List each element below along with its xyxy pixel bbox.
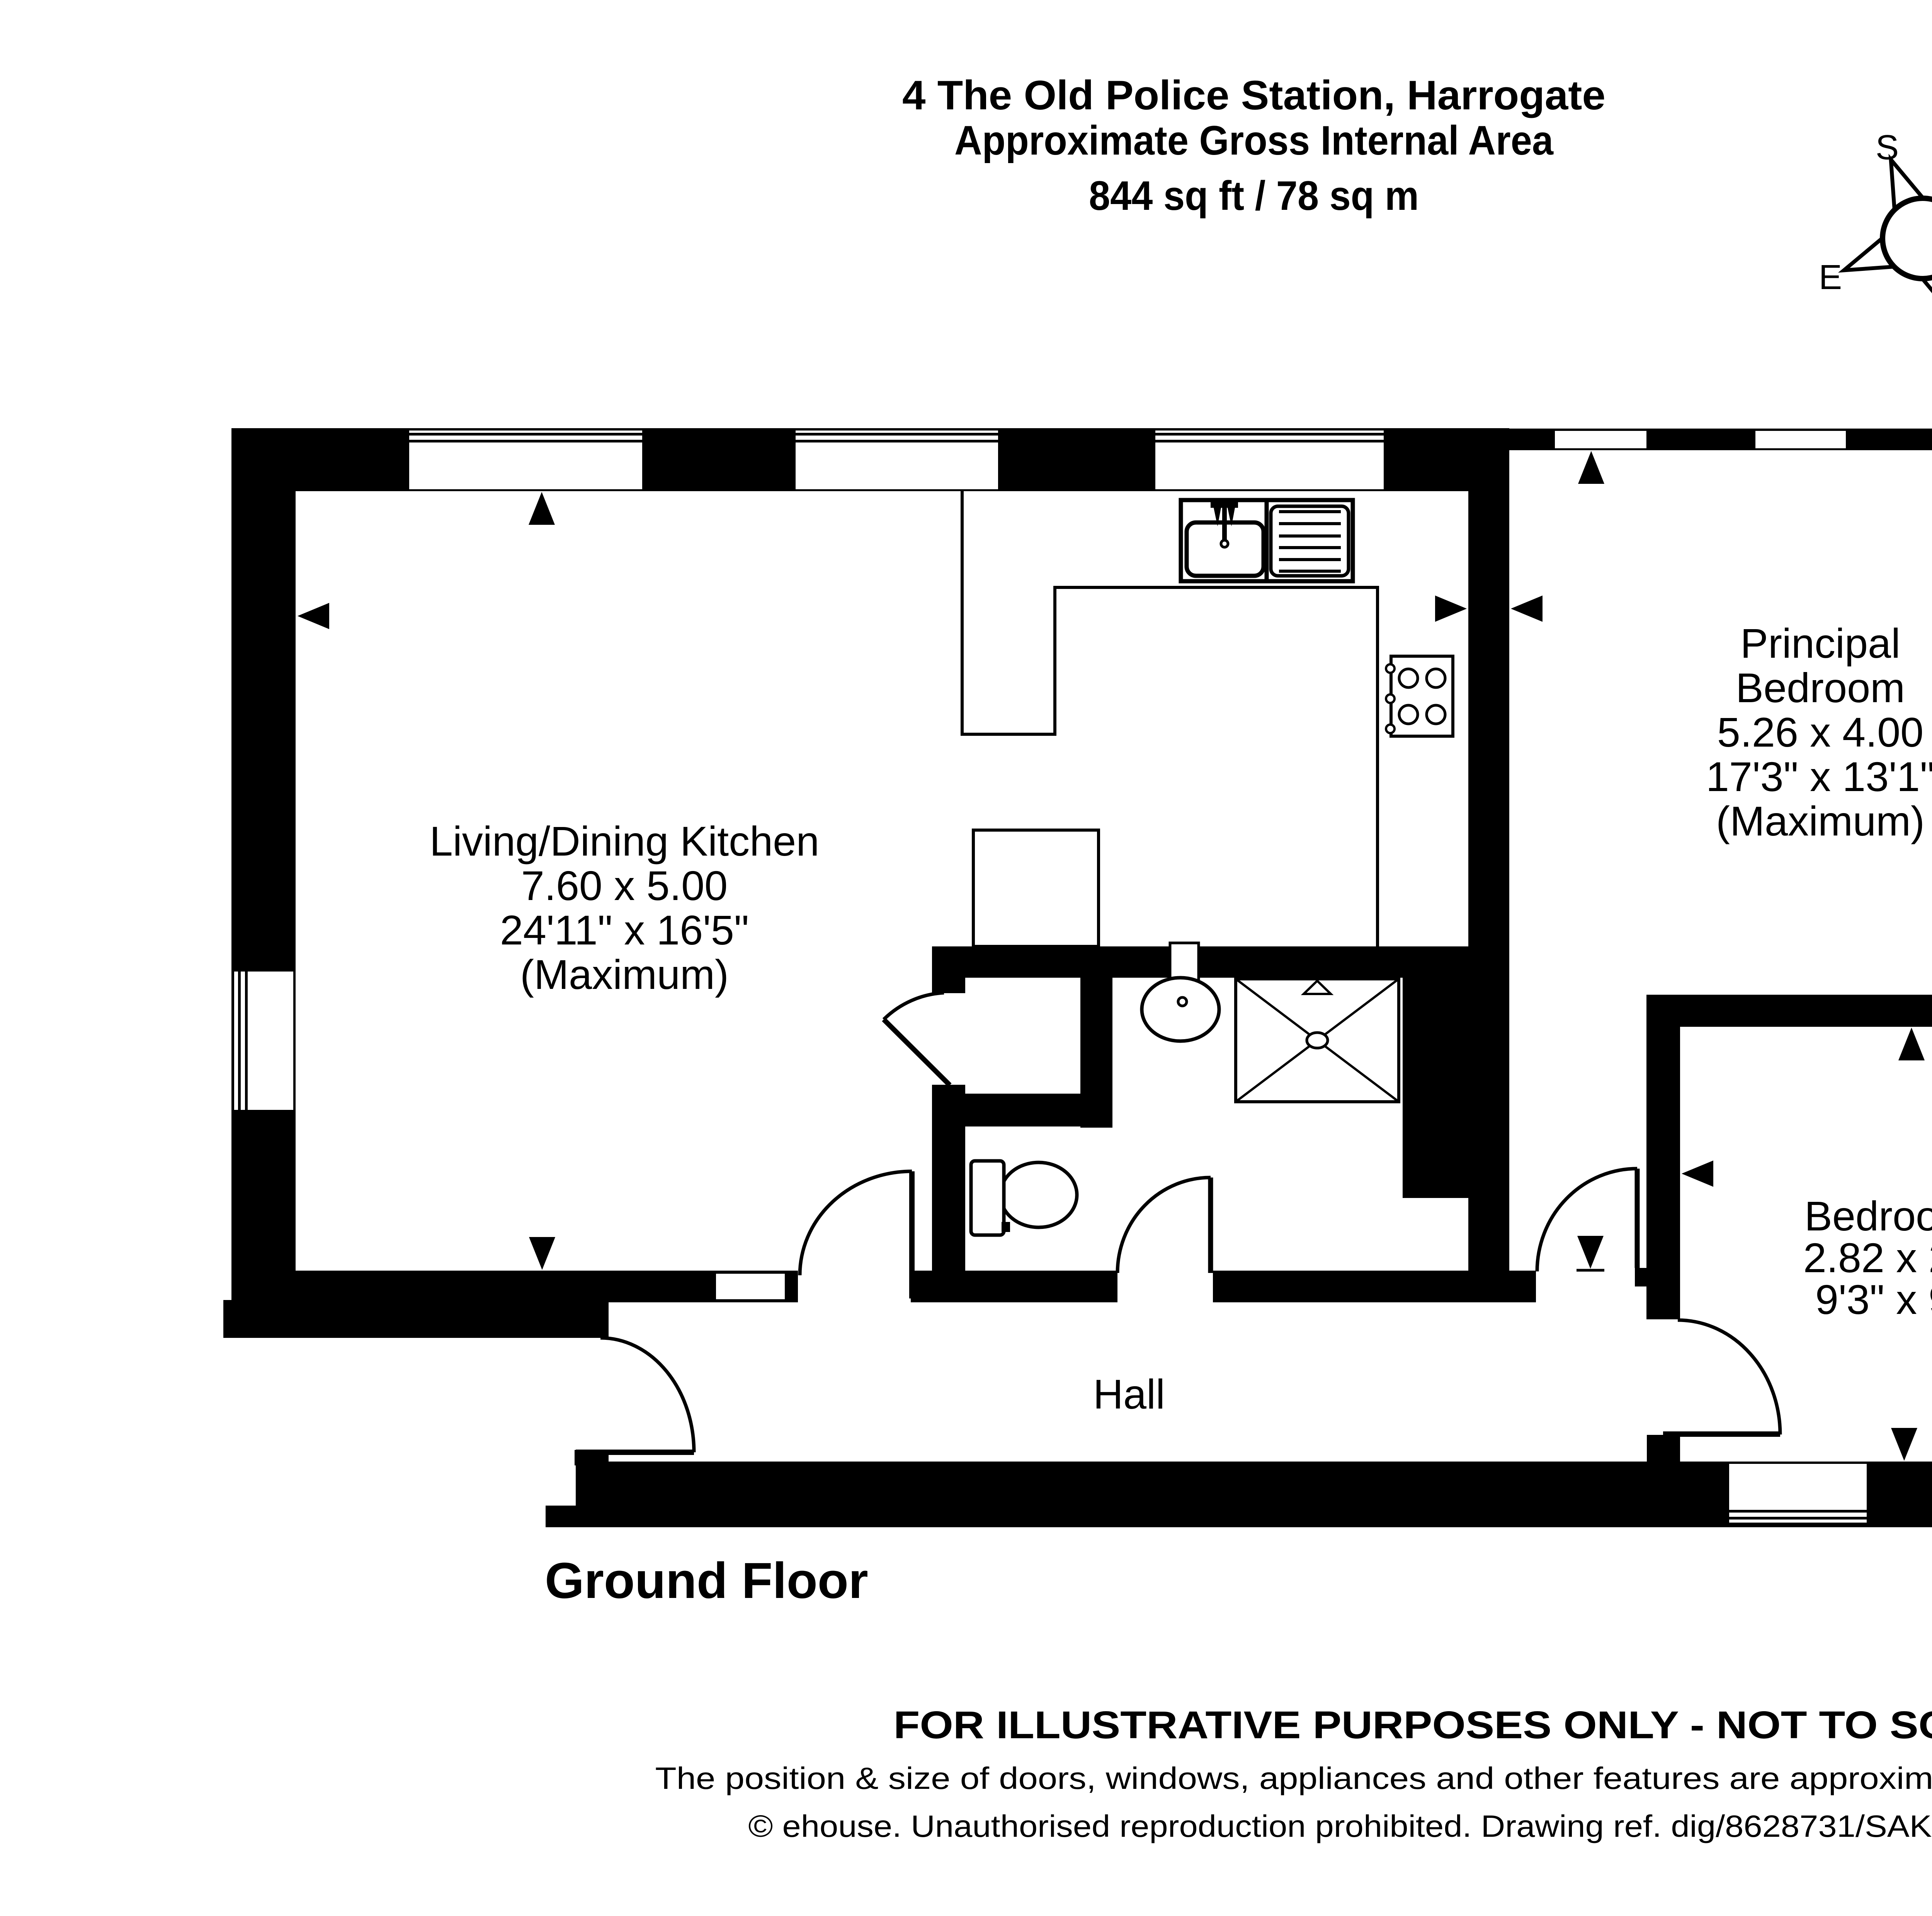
svg-text:5.26 x 4.00: 5.26 x 4.00: [1717, 709, 1923, 756]
svg-text:844 sq ft / 78 sq m: 844 sq ft / 78 sq m: [1089, 172, 1419, 219]
svg-text:7.60 x 5.00: 7.60 x 5.00: [521, 862, 728, 909]
svg-text:17'3" x 13'1": 17'3" x 13'1": [1706, 753, 1932, 800]
svg-text:Living/Dining Kitchen: Living/Dining Kitchen: [430, 818, 820, 864]
svg-text:FOR ILLUSTRATIVE PURPOSES ONLY: FOR ILLUSTRATIVE PURPOSES ONLY - NOT TO …: [894, 1703, 1932, 1747]
svg-text:4 The Old Police Station, Harr: 4 The Old Police Station, Harrogate: [902, 72, 1605, 118]
svg-text:Principal: Principal: [1740, 620, 1900, 667]
svg-text:Ground Floor: Ground Floor: [545, 1552, 868, 1609]
svg-text:© ehouse. Unauthorised reprodu: © ehouse. Unauthorised reproduction proh…: [748, 1809, 1932, 1843]
svg-text:Bedroom 2: Bedroom 2: [1804, 1193, 1932, 1239]
svg-text:E: E: [1819, 258, 1842, 297]
svg-text:9'3" x 9'2": 9'3" x 9'2": [1815, 1276, 1932, 1323]
svg-text:2.82 x 2.80: 2.82 x 2.80: [1803, 1234, 1932, 1281]
svg-text:Bedroom: Bedroom: [1736, 664, 1905, 711]
svg-text:Hall: Hall: [1093, 1371, 1165, 1417]
svg-text:Approximate Gross Internal Are: Approximate Gross Internal Area: [954, 117, 1554, 163]
svg-text:S: S: [1876, 128, 1899, 167]
svg-text:(Maximum): (Maximum): [1716, 798, 1925, 844]
svg-text:24'11" x 16'5": 24'11" x 16'5": [500, 907, 749, 953]
svg-text:The position & size of doors,: The position & size of doors, windows, a…: [655, 1761, 1932, 1795]
svg-text:(Maximum): (Maximum): [520, 951, 729, 998]
